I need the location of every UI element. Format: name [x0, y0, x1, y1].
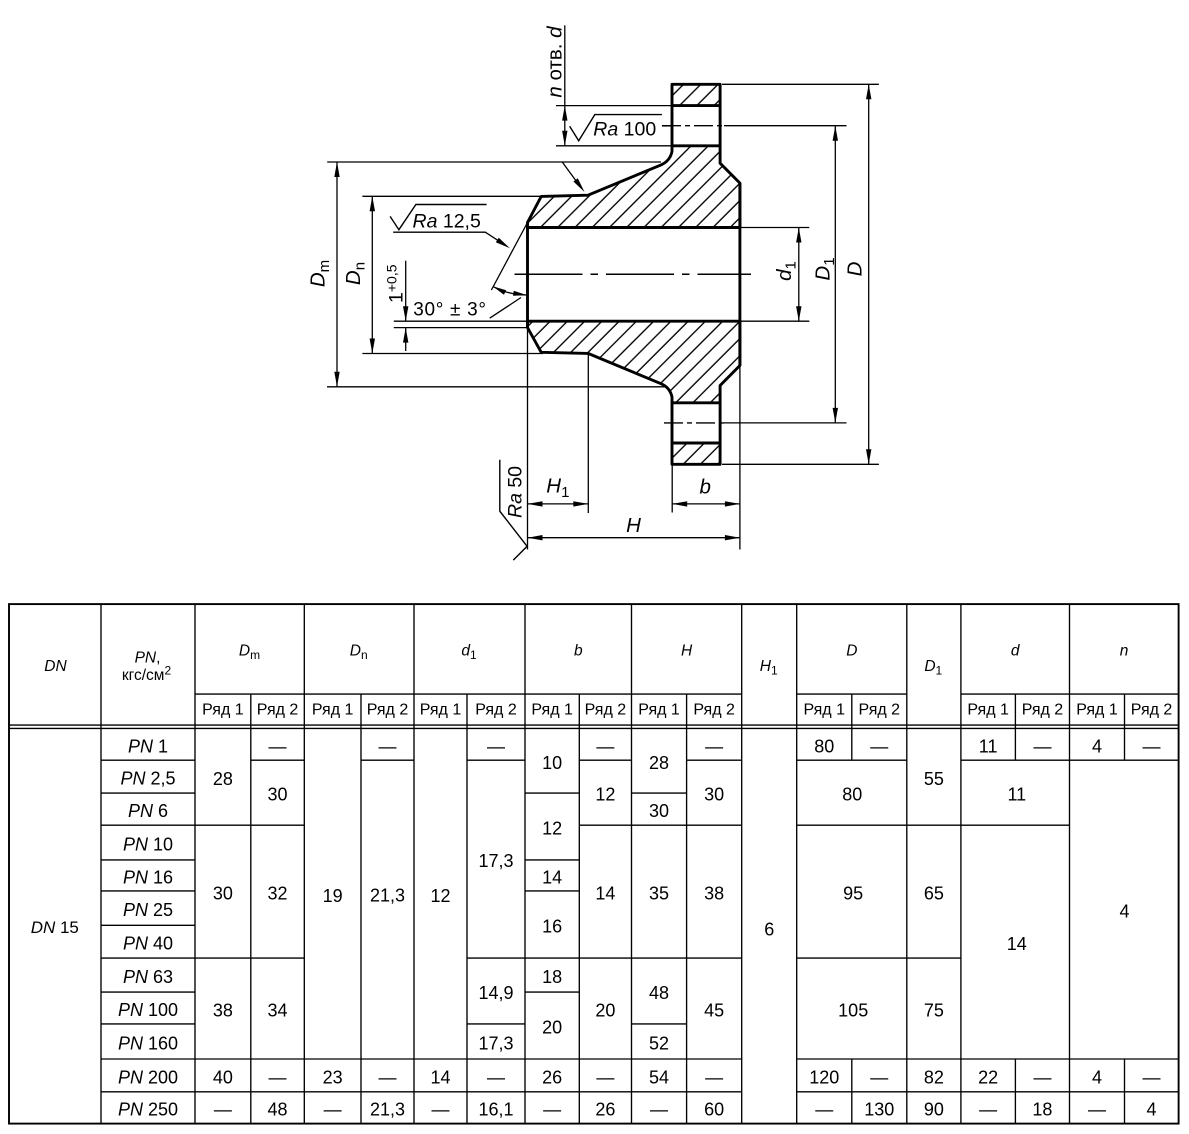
svg-text:Ряд 2: Ряд 2: [475, 702, 517, 719]
svg-text:20: 20: [542, 1017, 562, 1037]
svg-text:—: —: [269, 1067, 287, 1087]
svg-text:60: 60: [704, 1100, 724, 1120]
svg-text:75: 75: [924, 1000, 944, 1020]
svg-text:10: 10: [542, 753, 562, 773]
svg-text:H: H: [681, 643, 693, 660]
svg-text:—: —: [1143, 737, 1161, 757]
svg-text:16,1: 16,1: [478, 1100, 513, 1120]
svg-text:11: 11: [979, 737, 998, 757]
svg-text:—: —: [650, 1100, 668, 1120]
svg-text:82: 82: [924, 1067, 944, 1087]
svg-text:14: 14: [430, 1067, 450, 1087]
svg-text:—: —: [1088, 1100, 1106, 1120]
svg-text:PN 25: PN 25: [123, 900, 173, 920]
svg-text:Ряд 1: Ряд 1: [312, 702, 354, 719]
svg-text:21,3: 21,3: [370, 1100, 405, 1120]
svg-text:90: 90: [924, 1100, 944, 1120]
svg-text:PN 1: PN 1: [128, 737, 168, 757]
svg-text:14,9: 14,9: [478, 983, 513, 1003]
svg-text:120: 120: [809, 1067, 839, 1087]
svg-text:105: 105: [838, 1000, 868, 1020]
svg-text:—: —: [870, 1067, 888, 1087]
svg-text:26: 26: [542, 1067, 562, 1087]
svg-text:30: 30: [213, 884, 233, 904]
svg-text:—: —: [979, 1100, 997, 1120]
svg-text:12: 12: [430, 886, 450, 906]
svg-text:b: b: [699, 476, 710, 499]
svg-text:—: —: [1033, 737, 1051, 757]
svg-text:4: 4: [1119, 902, 1129, 922]
svg-text:Ряд 1: Ряд 1: [202, 702, 244, 719]
svg-text:Ряд 1: Ряд 1: [420, 702, 462, 719]
svg-text:d: d: [1011, 643, 1021, 660]
svg-text:Ряд 2: Ряд 2: [257, 702, 299, 719]
svg-text:PN,: PN,: [135, 649, 161, 666]
svg-text:—: —: [214, 1100, 232, 1120]
svg-text:28: 28: [649, 753, 669, 773]
svg-text:PN 250: PN 250: [118, 1100, 178, 1120]
svg-text:—: —: [705, 1067, 723, 1087]
svg-text:D: D: [844, 261, 867, 276]
svg-text:14: 14: [1007, 934, 1027, 954]
svg-text:—: —: [543, 1100, 561, 1120]
svg-text:23: 23: [323, 1067, 343, 1087]
svg-text:PN 200: PN 200: [118, 1067, 178, 1087]
svg-text:38: 38: [704, 884, 724, 904]
svg-text:22: 22: [978, 1067, 998, 1087]
svg-text:30: 30: [704, 785, 724, 805]
svg-text:—: —: [324, 1100, 342, 1120]
svg-text:16: 16: [542, 916, 562, 936]
svg-text:Ряд 1: Ряд 1: [531, 702, 573, 719]
svg-text:4: 4: [1092, 1067, 1102, 1087]
svg-text:95: 95: [843, 884, 863, 904]
svg-text:17,3: 17,3: [478, 851, 513, 871]
svg-text:Ряд 1: Ряд 1: [967, 702, 1009, 719]
svg-text:Ra 12,5: Ra 12,5: [413, 211, 481, 233]
svg-text:b: b: [574, 643, 583, 660]
svg-text:12: 12: [542, 818, 562, 838]
svg-text:Ряд 2: Ряд 2: [1022, 702, 1064, 719]
svg-text:—: —: [870, 737, 888, 757]
svg-text:—: —: [379, 1067, 397, 1087]
svg-text:34: 34: [268, 1000, 288, 1020]
svg-text:55: 55: [924, 769, 944, 789]
svg-text:PN 10: PN 10: [123, 834, 173, 854]
svg-text:54: 54: [649, 1067, 669, 1087]
svg-text:—: —: [1143, 1067, 1161, 1087]
svg-text:32: 32: [268, 884, 288, 904]
svg-text:Ряд 1: Ряд 1: [804, 702, 846, 719]
svg-text:40: 40: [213, 1067, 233, 1087]
svg-text:Ряд 1: Ряд 1: [1076, 702, 1118, 719]
svg-text:30: 30: [268, 785, 288, 805]
svg-text:D: D: [846, 643, 857, 660]
svg-text:45: 45: [704, 1000, 724, 1020]
svg-text:48: 48: [268, 1100, 288, 1120]
svg-text:17,3: 17,3: [478, 1033, 513, 1053]
svg-text:4: 4: [1147, 1100, 1157, 1120]
svg-text:DN: DN: [44, 658, 67, 675]
svg-text:35: 35: [649, 884, 669, 904]
svg-text:PN 160: PN 160: [118, 1033, 178, 1053]
svg-text:PN 6: PN 6: [128, 801, 168, 821]
svg-text:Ряд 2: Ряд 2: [859, 702, 901, 719]
svg-text:—: —: [487, 1067, 505, 1087]
svg-text:65: 65: [924, 884, 944, 904]
svg-text:6: 6: [764, 920, 774, 940]
svg-text:130: 130: [864, 1100, 894, 1120]
svg-text:PN 2,5: PN 2,5: [120, 769, 175, 789]
svg-text:PN 63: PN 63: [123, 967, 173, 987]
svg-text:—: —: [487, 737, 505, 757]
svg-text:—: —: [432, 1100, 450, 1120]
svg-text:Ra 50: Ra 50: [505, 466, 527, 518]
svg-text:—: —: [269, 737, 287, 757]
svg-text:Ряд 2: Ряд 2: [1131, 702, 1173, 719]
svg-text:48: 48: [649, 983, 669, 1003]
svg-text:4: 4: [1092, 737, 1102, 757]
svg-text:PN 16: PN 16: [123, 867, 173, 887]
svg-text:28: 28: [213, 769, 233, 789]
svg-text:DN 15: DN 15: [31, 918, 79, 937]
svg-text:—: —: [379, 737, 397, 757]
svg-text:—: —: [705, 737, 723, 757]
svg-text:20: 20: [595, 1000, 615, 1020]
svg-text:80: 80: [814, 737, 834, 757]
svg-text:80: 80: [842, 785, 862, 805]
svg-text:14: 14: [595, 884, 615, 904]
svg-text:H: H: [626, 514, 641, 537]
svg-text:21,3: 21,3: [370, 886, 405, 906]
svg-text:12: 12: [595, 785, 615, 805]
svg-text:19: 19: [323, 886, 343, 906]
svg-text:30: 30: [649, 801, 669, 821]
svg-text:—: —: [596, 1067, 614, 1087]
svg-text:18: 18: [542, 967, 562, 987]
svg-text:PN 40: PN 40: [123, 934, 173, 954]
svg-text:18: 18: [1032, 1100, 1052, 1120]
svg-text:—: —: [1033, 1067, 1051, 1087]
svg-text:—: —: [815, 1100, 833, 1120]
svg-text:14: 14: [542, 867, 562, 887]
svg-text:n: n: [1120, 643, 1129, 660]
svg-text:38: 38: [213, 1000, 233, 1020]
svg-text:30° ± 3°: 30° ± 3°: [413, 299, 486, 320]
svg-text:—: —: [596, 737, 614, 757]
svg-text:52: 52: [649, 1033, 669, 1053]
svg-text:11: 11: [1007, 785, 1026, 805]
svg-text:PN 100: PN 100: [118, 1000, 178, 1020]
svg-text:n отв. d: n отв. d: [543, 26, 566, 98]
svg-text:26: 26: [595, 1100, 615, 1120]
svg-text:Ряд 1: Ряд 1: [638, 702, 680, 719]
svg-text:Ряд 2: Ряд 2: [367, 702, 409, 719]
svg-text:кгс/см2: кгс/см2: [122, 663, 172, 684]
svg-text:Ряд 2: Ряд 2: [693, 702, 735, 719]
svg-text:Ra 100: Ra 100: [593, 118, 656, 140]
svg-text:Ряд 2: Ряд 2: [585, 702, 627, 719]
